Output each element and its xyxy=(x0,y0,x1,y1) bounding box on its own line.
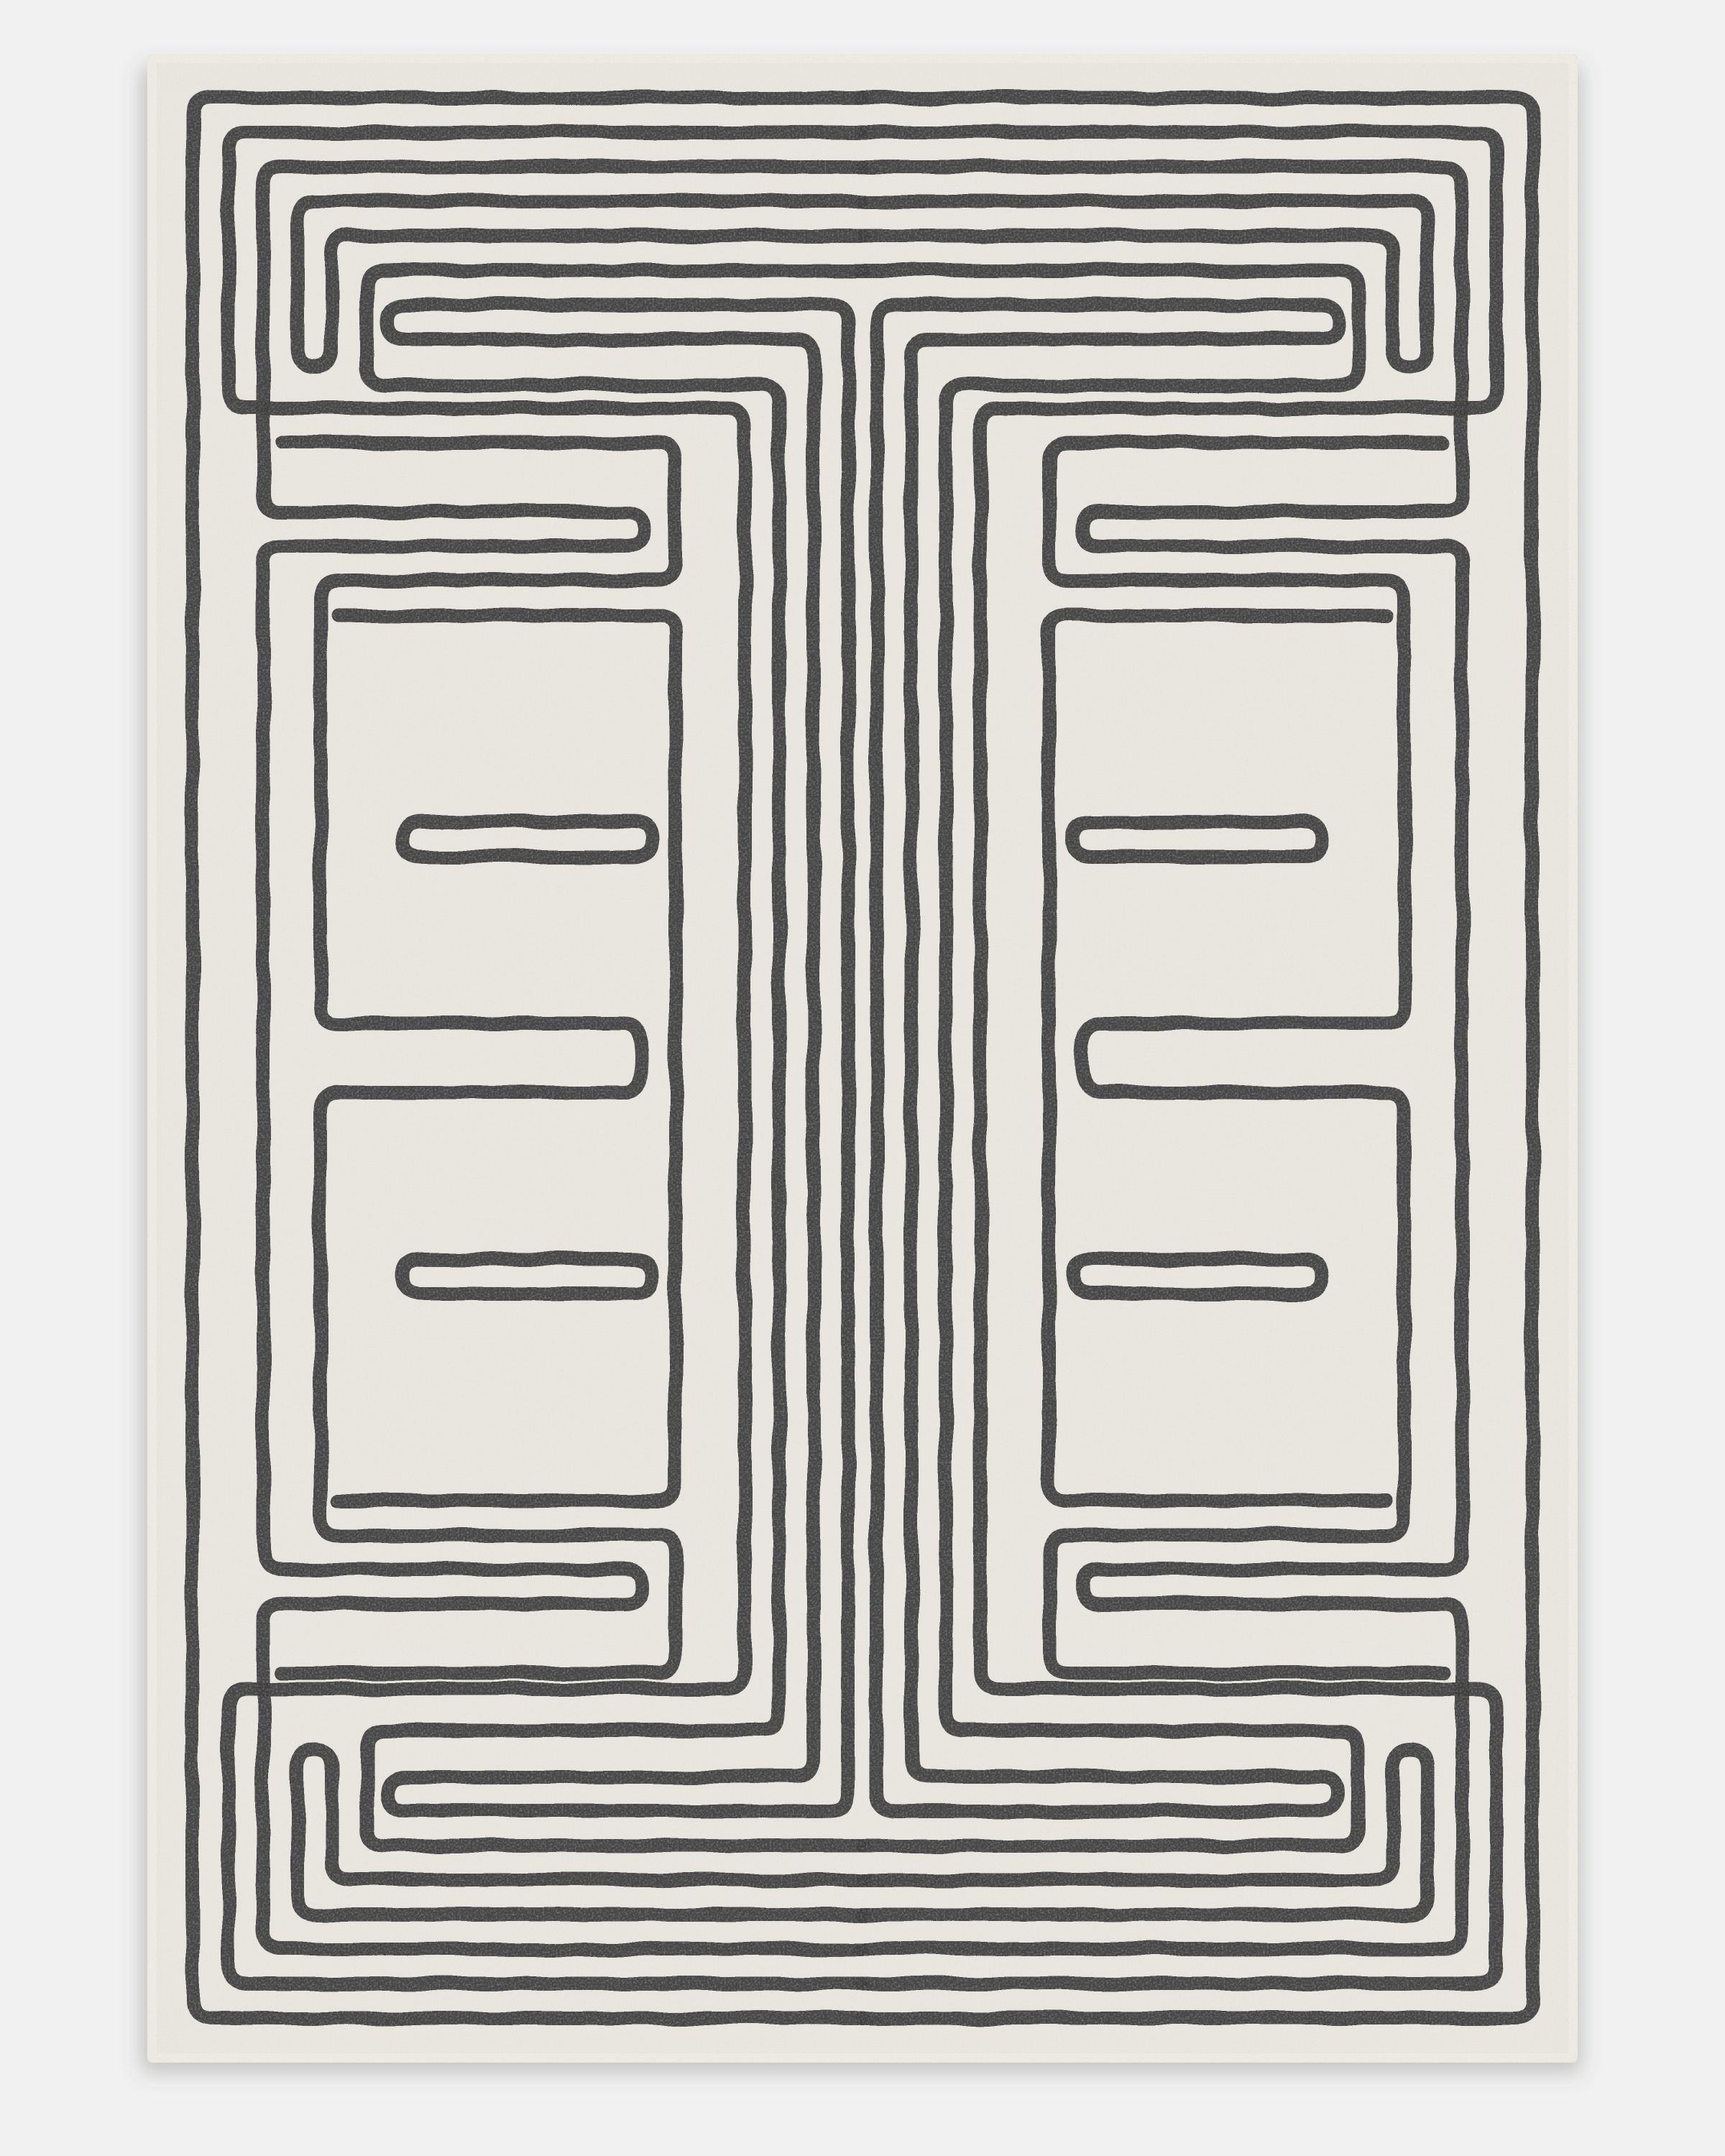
rug-photo xyxy=(0,0,1725,2156)
rug-texture-weave xyxy=(147,54,1578,2063)
product-photo-stage xyxy=(0,0,1725,2156)
